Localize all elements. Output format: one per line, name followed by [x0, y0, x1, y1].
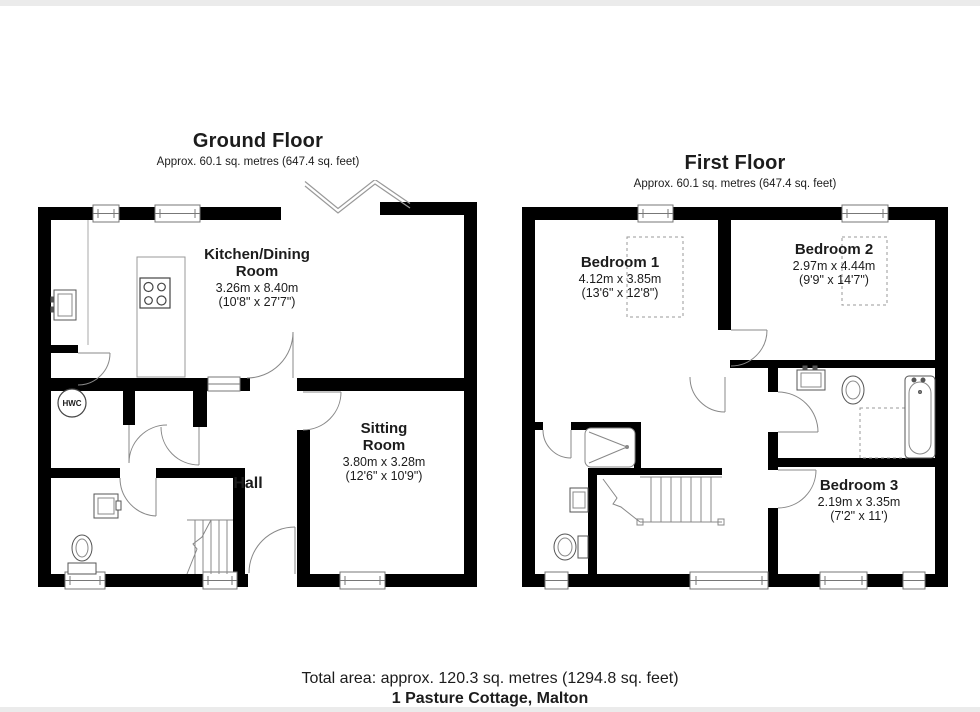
- ground-stairs-icon: [187, 520, 233, 574]
- window: [690, 572, 768, 589]
- bedroom1-label: Bedroom 1 4.12m x 3.85m (13'6" x 12'8"): [530, 255, 710, 300]
- first-floor-title: First Floor: [585, 152, 885, 175]
- window: [340, 572, 385, 589]
- kitchen-sink-icon: [51, 290, 76, 320]
- floorplan-page: { "ground_floor": { "title": "Ground Flo…: [0, 0, 980, 712]
- ground-floor-title: Ground Floor: [103, 130, 413, 153]
- bedroom2-label: Bedroom 2 2.97m x 4.44m (9'9" x 14'7"): [744, 242, 924, 287]
- hwc-tank-icon: HWC: [58, 389, 86, 417]
- bathroom-toilet-icon: [842, 376, 864, 404]
- bathtub-icon: [905, 376, 935, 458]
- bathroom-dashed-area: [860, 408, 910, 458]
- total-area-text: Total area: approx. 120.3 sq. metres (12…: [0, 670, 980, 688]
- ground-floor-subtitle: Approx. 60.1 sq. metres (647.4 sq. feet): [103, 156, 413, 168]
- bedroom3-label: Bedroom 3 2.19m x 3.35m (7'2" x 11'): [769, 478, 949, 523]
- kitchen-door: [247, 332, 293, 378]
- shower-icon: [585, 428, 635, 467]
- window: [842, 205, 888, 222]
- front-door: [249, 527, 295, 574]
- bathroom-sink-icon: [797, 366, 825, 390]
- window: [155, 205, 200, 222]
- footer: Total area: approx. 120.3 sq. metres (12…: [0, 670, 980, 708]
- shower-basin-icon: [570, 488, 588, 512]
- wc-toilet-icon: [68, 535, 96, 574]
- page-top-edge: [0, 0, 980, 6]
- window: [545, 572, 568, 589]
- hwc-label: HWC: [62, 399, 81, 408]
- ground-floor-title-block: Ground Floor Approx. 60.1 sq. metres (64…: [103, 130, 413, 168]
- first-stairs-icon: [603, 477, 724, 525]
- kitchen-dining-label: Kitchen/Dining Room 3.26m x 8.40m (10'8"…: [167, 247, 347, 309]
- window: [638, 205, 673, 222]
- bedroom1-door: [690, 377, 725, 412]
- shower-toilet-icon: [554, 534, 588, 560]
- closet-door: [161, 427, 199, 465]
- window: [93, 205, 119, 222]
- front-door-opening: [248, 574, 297, 587]
- bathroom-door: [778, 392, 818, 432]
- window: [903, 572, 925, 589]
- window: [203, 572, 237, 589]
- window: [820, 572, 867, 589]
- shower-room-door: [543, 430, 571, 458]
- wc-door: [120, 478, 156, 516]
- sitting-room-label: Sitting Room 3.80m x 3.28m (12'6" x 10'9…: [294, 421, 474, 483]
- internal-hatch-window: [208, 377, 240, 391]
- address-text: 1 Pasture Cottage, Malton: [0, 690, 980, 708]
- window: [65, 572, 105, 589]
- ground-floor-plan: HWC: [30, 180, 480, 595]
- wc-basin-icon: [94, 494, 121, 518]
- hall-label: Hall: [203, 475, 293, 493]
